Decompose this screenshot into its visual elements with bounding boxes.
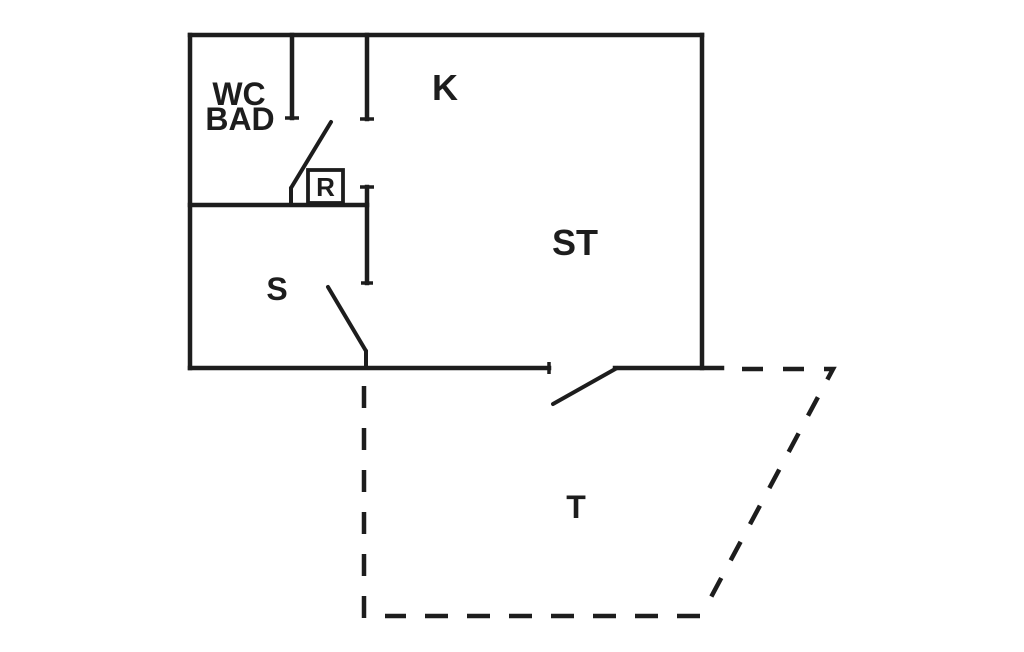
- entry-door-swing: [553, 368, 617, 404]
- room-label-k: K: [432, 67, 458, 108]
- room-label-t: T: [566, 489, 586, 525]
- floorplan-drawing: WCBADKSTSTR: [0, 0, 1024, 652]
- room-label-st: ST: [552, 222, 598, 263]
- room-label-bad: BAD: [205, 101, 274, 137]
- radiator-marker-label: R: [316, 172, 335, 202]
- floorplan-page: WCBADKSTSTR: [0, 0, 1024, 652]
- s-door-swing: [328, 287, 366, 351]
- terrace-outline-east: [702, 369, 833, 614]
- room-label-s: S: [266, 271, 287, 307]
